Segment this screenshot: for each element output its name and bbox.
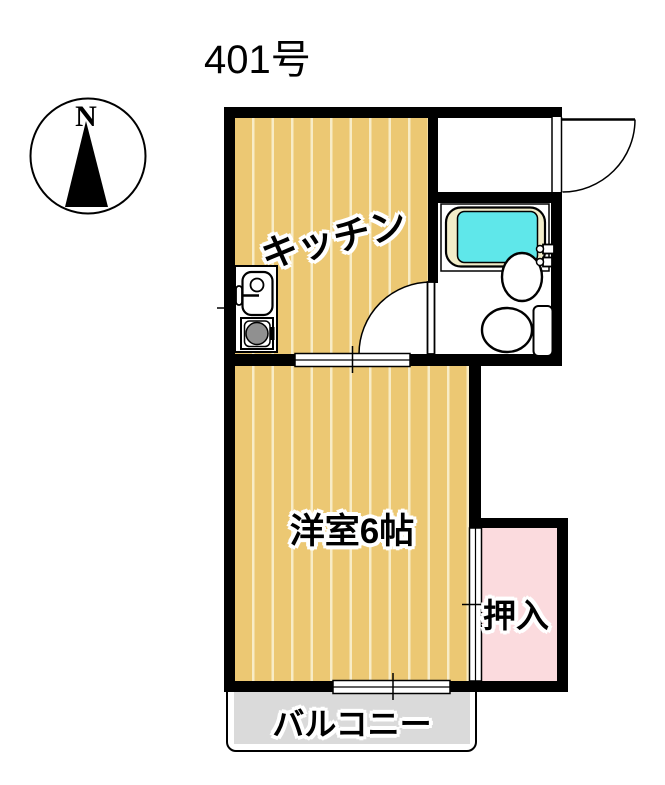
north-compass: N [31,99,146,214]
compass-circle [31,99,146,214]
door-swing-arc [563,120,636,193]
wall-bottom [224,681,568,692]
toilet-tank [534,306,553,356]
wall-closet-top [469,518,568,528]
bathtub-water [458,212,538,263]
wall-mid-right [410,354,562,366]
north-label: N [75,100,97,133]
wall-room-right [469,354,481,520]
north-arrow-icon [65,121,108,207]
floor-plan: N [0,0,665,785]
closet-label: 押入 [466,589,566,637]
bathroom-fixtures [441,204,554,356]
door-leaf [428,282,435,354]
toilet [482,306,553,356]
wall-entry-bath [438,192,562,203]
western-room-label: 洋室6帖 [260,503,444,554]
wall-mid-left [224,354,295,366]
wall-top [224,107,562,118]
bathtub [446,208,545,267]
bath-enclosure [441,204,549,271]
wall-kitchen-bath [428,107,438,283]
wall-left [224,107,235,692]
toilet-bowl [482,308,532,352]
balcony-label: バルコニー [259,699,445,745]
entrance-door [552,117,636,192]
unit-title: 401号 [204,27,311,85]
wall-right-bath [551,192,562,365]
wash-basin [502,253,542,301]
